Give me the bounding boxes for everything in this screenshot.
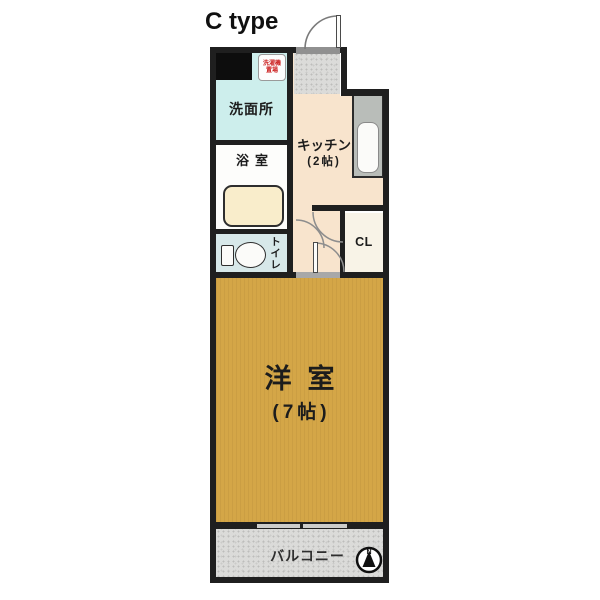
- wall-room-top-left: [210, 272, 297, 278]
- hall-door-leaf: [313, 242, 318, 273]
- plan-type-title: C type: [205, 8, 278, 36]
- wall-bottom: [210, 577, 389, 583]
- wall-left: [210, 47, 216, 583]
- wall-entrance-right: [341, 47, 347, 94]
- storage-counter-block: [211, 52, 252, 80]
- wall-right: [383, 89, 389, 583]
- wall-room-top-right: [340, 272, 389, 278]
- main-room-label: 洋室: [216, 364, 383, 395]
- kitchen-name: キッチン: [297, 138, 351, 153]
- wall-closet-top: [312, 205, 389, 211]
- kitchen-sink-icon: [357, 122, 379, 173]
- kitchen-label: キッチン (2帖): [294, 138, 354, 169]
- entrance-door-arc: [305, 16, 338, 49]
- washer-note-line1: 洗濯機: [263, 61, 281, 68]
- closet-label: CL: [345, 235, 383, 249]
- toilet-label: トイレ: [269, 234, 281, 272]
- wall-washroom-bath: [210, 140, 291, 145]
- toilet-bowl-icon: [235, 242, 266, 268]
- entrance-floor: [294, 52, 340, 94]
- bathroom-label: 浴室: [216, 154, 288, 169]
- entrance-door-leaf: [336, 15, 341, 48]
- toilet-tank-icon: [221, 245, 234, 266]
- balcony-window-divider: [300, 522, 303, 529]
- hall-door-sill: [296, 272, 341, 278]
- balcony-label: バルコニー: [240, 548, 375, 564]
- washer-note-line2: 置場: [266, 68, 278, 75]
- kitchen-size: (2帖): [294, 156, 354, 169]
- floorplan-canvas: C type 洗濯機 置場 N: [0, 0, 600, 600]
- main-room-size: (7帖): [216, 402, 383, 424]
- bathtub-icon: [223, 185, 284, 227]
- wall-top: [210, 47, 296, 53]
- main-room-floor: [216, 278, 383, 522]
- washing-machine-icon: 洗濯機 置場: [258, 54, 286, 81]
- entrance-door-sill: [296, 47, 340, 54]
- wall-notch: [341, 89, 389, 96]
- washroom-label: 洗面所: [216, 101, 287, 117]
